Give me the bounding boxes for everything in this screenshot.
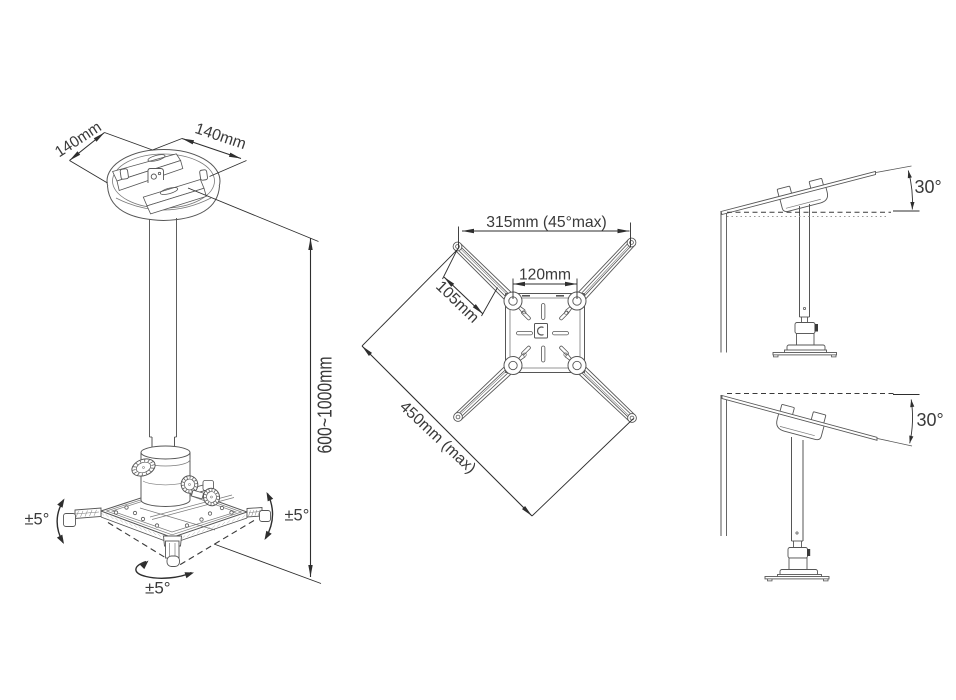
svg-text:±5°: ±5° xyxy=(25,511,50,529)
svg-text:315mm (45°max): 315mm (45°max) xyxy=(486,214,606,231)
svg-text:±5°: ±5° xyxy=(145,579,171,598)
svg-text:600~1000mm: 600~1000mm xyxy=(315,357,337,454)
svg-text:30°: 30° xyxy=(915,177,942,197)
svg-text:30°: 30° xyxy=(917,410,944,430)
svg-text:±5°: ±5° xyxy=(285,507,310,525)
svg-text:120mm: 120mm xyxy=(519,267,571,284)
